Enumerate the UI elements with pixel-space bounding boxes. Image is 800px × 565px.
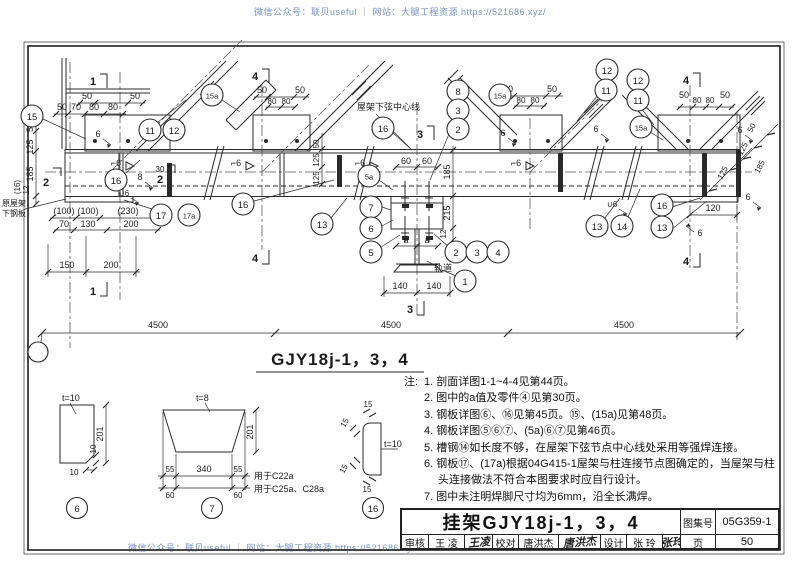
- callout-7: 7: [360, 196, 382, 218]
- detail-6-cut-v: 10: [89, 444, 98, 453]
- notes-prefix: 注:: [404, 374, 418, 390]
- dim: 140: [392, 281, 407, 291]
- detail-6: t=10 201 10 10 6: [60, 393, 109, 519]
- beam-break-marks: [204, 146, 642, 200]
- svg-text:12: 12: [169, 126, 180, 137]
- svg-text:16: 16: [378, 124, 389, 135]
- note-7: 7. 图中未注明焊脚尺寸均为6mm，沿全长满焊。: [424, 489, 782, 505]
- dim: 50: [57, 102, 67, 112]
- dim: 80: [89, 102, 99, 112]
- svg-text:11: 11: [633, 96, 643, 107]
- dim: 50: [720, 90, 730, 100]
- dim: 125: [312, 153, 321, 167]
- svg-text:5: 5: [368, 248, 373, 259]
- dim: 200: [123, 219, 138, 229]
- section-4b-top: 4: [683, 75, 690, 87]
- dim: 80: [517, 96, 526, 105]
- dim: 50: [257, 85, 267, 95]
- callout-16: 16: [105, 169, 127, 191]
- callout-2-bottom: 2: [445, 241, 467, 263]
- weld-6: 6: [697, 228, 702, 238]
- detail-6-number: 6: [74, 504, 79, 515]
- svg-text:16: 16: [657, 201, 668, 212]
- design-signature: 张玲: [662, 535, 680, 549]
- section-4a-top: 4: [252, 71, 259, 83]
- dim: 50: [312, 139, 321, 148]
- svg-text:13: 13: [657, 223, 668, 234]
- existing-plate-label-1: 原屋架: [2, 199, 26, 208]
- design-label: 设计: [600, 535, 626, 549]
- detail-16: t=10 15 15 15 15 16: [338, 400, 402, 519]
- svg-text:7: 7: [368, 203, 373, 214]
- grid-bubble: [28, 342, 48, 362]
- svg-text:8: 8: [455, 87, 460, 98]
- title-block: 挂架GJY18j-1，3，4 图集号 05G359-1 审核 王 凌 王凌 校对…: [400, 508, 780, 550]
- dim: 185: [442, 164, 452, 179]
- sheet-title: 挂架GJY18j-1，3，4: [402, 510, 680, 534]
- page-label: 页: [680, 535, 715, 549]
- weld-6: 6: [500, 128, 505, 138]
- detail-6-height: 201: [95, 426, 105, 441]
- callout-13-mid: 13: [586, 215, 608, 237]
- detail-16-thickness: t=10: [384, 439, 402, 449]
- dim: 12: [439, 229, 448, 238]
- dim: 50: [295, 85, 305, 95]
- detail-16-r-tl: 15: [339, 416, 351, 429]
- dim: 50: [130, 91, 140, 101]
- atlas-no-value: 05G359-1: [715, 510, 778, 534]
- callout-12-c: 12: [627, 69, 649, 91]
- dim: 80: [693, 96, 702, 105]
- svg-text:16: 16: [238, 200, 249, 211]
- section-3-top: 3: [417, 129, 423, 141]
- dim: 80: [706, 96, 715, 105]
- review-label: 审核: [402, 535, 428, 549]
- callouts: 15 11 12 15a 16 17 17a 16 13 16 8 3 2 15…: [21, 59, 673, 292]
- chord-centerline-label: 屋架下弦中心线: [357, 101, 420, 112]
- dim: 12: [22, 185, 31, 194]
- notes-block: 注: 1. 剖面详图1-1~4-4见第44页。 2. 图中的a值及零件④见第30…: [402, 374, 782, 505]
- detail-7-height: 201: [245, 424, 255, 439]
- elevation-title: GJY18j-1，3，4: [271, 350, 409, 369]
- svg-text:3: 3: [474, 248, 479, 259]
- callout-16-mid: 16: [232, 193, 254, 215]
- dim: 70: [71, 102, 81, 112]
- weld-6: 6: [593, 124, 598, 134]
- weld-u6: ∪6: [607, 200, 618, 209]
- dim: 125: [312, 171, 321, 185]
- design-name: 张 玲: [626, 535, 662, 549]
- span-dim-3: 4500: [614, 320, 634, 330]
- callout-2-top: 2: [447, 118, 469, 140]
- dim: 215: [442, 205, 452, 220]
- callout-3-bottom: 3: [466, 241, 488, 263]
- detail-16-number: 16: [368, 504, 379, 515]
- callout-17a: 17a: [178, 204, 200, 226]
- svg-text:17a: 17a: [183, 212, 196, 221]
- dim: 80: [268, 97, 277, 106]
- svg-text:6: 6: [368, 224, 373, 235]
- detail-7-60-left: 60: [166, 491, 175, 500]
- callout-17: 17: [150, 204, 172, 226]
- detail-6-cut-h: 10: [70, 468, 79, 477]
- section-4b-bottom: 4: [683, 256, 690, 268]
- svg-text:11: 11: [601, 86, 611, 97]
- weld-6: 6: [745, 192, 750, 202]
- dim: 80: [531, 96, 540, 105]
- detail-7-340: 340: [196, 464, 211, 474]
- section-2-left: 2: [43, 177, 49, 189]
- callout-6: 6: [360, 217, 382, 239]
- dim: 50: [746, 121, 758, 134]
- svg-text:13: 13: [592, 222, 603, 233]
- dim: (230): [117, 206, 138, 216]
- svg-text:12: 12: [633, 76, 644, 87]
- dim: 80: [282, 97, 291, 106]
- dim: 60: [422, 156, 432, 166]
- detail-7-use-c22a: 用于C22a: [254, 471, 294, 481]
- dim: a: [424, 235, 429, 245]
- callout-5a: 5a: [358, 165, 380, 187]
- detail-16-r-bottom: 15: [363, 485, 372, 494]
- section-3-bottom: 3: [407, 304, 413, 316]
- dim: 50: [547, 84, 557, 94]
- dim: 125: [25, 139, 35, 154]
- svg-text:16: 16: [111, 176, 122, 187]
- dim: 125: [716, 164, 730, 180]
- svg-text:15: 15: [27, 112, 38, 123]
- svg-text:14: 14: [617, 222, 628, 233]
- dim: (100): [53, 206, 74, 216]
- callout-12: 12: [163, 119, 185, 141]
- callout-15a: 15a: [201, 84, 223, 106]
- weld-c6: ⌐6: [111, 158, 121, 168]
- check-signature: 唐洪杰: [558, 535, 600, 549]
- drawing-sheet: 微信公众号：联贝useful ｜ 网站：大腿工程资源 https://52168…: [0, 0, 800, 565]
- section-2-right: 2: [157, 174, 163, 186]
- callout-11-c: 11: [627, 89, 649, 111]
- dim: 185: [753, 158, 767, 174]
- dim: 150: [59, 260, 74, 270]
- svg-text:15a: 15a: [206, 92, 219, 101]
- svg-text:17: 17: [156, 211, 167, 222]
- dim: 50: [82, 91, 92, 101]
- review-signature: 王凌: [464, 535, 492, 549]
- weld-c6: ⌐6: [511, 158, 521, 168]
- detail-7: t=8 201 55 340 55 60 60 用于C22a 用于C25a、C2…: [158, 393, 324, 519]
- svg-text:13: 13: [317, 220, 328, 231]
- review-name: 王 凌: [428, 535, 464, 549]
- detail-16-r-top: 15: [364, 400, 373, 409]
- callout-14: 14: [611, 215, 633, 237]
- dim: 185: [25, 166, 35, 181]
- dim: 80: [108, 102, 118, 112]
- dim: 30: [156, 165, 165, 174]
- svg-text:11: 11: [145, 126, 155, 137]
- section-1-bottom: 1: [90, 286, 96, 298]
- span-dim-2: 4500: [381, 320, 401, 330]
- detail-7-thickness: t=8: [196, 393, 209, 403]
- note-4: 4. 钢板详图⑤⑥⑦、(5a)⑥⑦见第46页。: [424, 423, 782, 439]
- check-label: 校对: [492, 535, 518, 549]
- dim: 60: [401, 156, 411, 166]
- note-2: 2. 图中的a值及零件④见第30页。: [424, 390, 782, 406]
- existing-plate-label-2: 下钢板: [2, 208, 26, 218]
- dim: a: [403, 235, 408, 245]
- beam-lines: [45, 149, 752, 202]
- detail-7-60-right: 60: [234, 491, 243, 500]
- atlas-no-label: 图集号: [680, 510, 715, 534]
- detail-7-55-right: 55: [234, 465, 243, 474]
- detail-7-number: 7: [209, 504, 214, 515]
- callout-1: 1: [454, 270, 476, 292]
- svg-text:15a: 15a: [494, 92, 507, 101]
- svg-text:2: 2: [455, 125, 460, 136]
- detail-7-55-left: 55: [166, 465, 175, 474]
- section-4a-bottom: 4: [252, 253, 259, 265]
- weld-c6: ⌐6: [231, 158, 241, 168]
- dim: 130: [80, 219, 95, 229]
- svg-text:15a: 15a: [635, 124, 648, 133]
- rail-label: 轨道: [434, 262, 452, 273]
- callout-5: 5: [360, 241, 382, 263]
- dim: 120: [705, 203, 720, 213]
- svg-text:12: 12: [602, 66, 613, 77]
- drawing-labels: 屋架下弦中心线 轨道 原屋架 下钢板 GJY18j-1，3，4: [2, 101, 452, 372]
- callout-15: 15: [21, 105, 43, 127]
- weld-6: 6: [737, 125, 742, 135]
- callout-15a-mid: 15a: [489, 84, 511, 106]
- dim: 140: [426, 281, 441, 291]
- callout-16-center: 16: [372, 117, 394, 139]
- detail-6-thickness: t=10: [62, 393, 80, 403]
- span-dim-1: 4500: [148, 320, 168, 330]
- note-5: 5. 槽钢⑭如长度不够，在屋架下弦节点中心线处采用等强焊连接。: [424, 440, 782, 456]
- weld-8: 8: [137, 172, 142, 182]
- svg-text:3: 3: [455, 106, 460, 117]
- weld-6: 6: [95, 129, 100, 139]
- svg-text:2: 2: [453, 248, 458, 259]
- note-3: 3. 钢板详图⑥、⑯见第45页。⑮、(15a)见第48页。: [424, 407, 782, 423]
- callout-4: 4: [487, 241, 509, 263]
- svg-text:1: 1: [462, 277, 467, 288]
- callout-13-right: 13: [651, 216, 673, 238]
- note-6: 6. 钢板⑰、(17a)根据04G415-1屋架与柱连接节点图确定的，当屋架与柱…: [424, 456, 782, 489]
- dim: (16): [13, 180, 22, 195]
- dim: (100): [77, 206, 98, 216]
- check-name: 唐洪杰: [518, 535, 558, 549]
- section-1-top: 1: [90, 76, 96, 88]
- detail-7-use-c25a: 用于C25a、C28a: [254, 484, 324, 494]
- page-value: 50: [715, 535, 778, 549]
- note-1: 1. 剖面详图1-1~4-4见第44页。: [424, 374, 782, 390]
- callout-13-left: 13: [311, 213, 333, 235]
- detail-16-r-bl: 15: [338, 462, 350, 475]
- dim: 70: [59, 219, 69, 229]
- callout-16-right: 16: [651, 194, 673, 216]
- callout-15a-right: 15a: [630, 116, 652, 138]
- dim: 50: [679, 90, 689, 100]
- callout-11: 11: [139, 119, 161, 141]
- callout-12-b: 12: [596, 59, 618, 81]
- svg-text:4: 4: [495, 248, 500, 259]
- dim: 200: [103, 260, 118, 270]
- callout-11-b: 11: [595, 79, 617, 101]
- svg-text:5a: 5a: [365, 173, 374, 182]
